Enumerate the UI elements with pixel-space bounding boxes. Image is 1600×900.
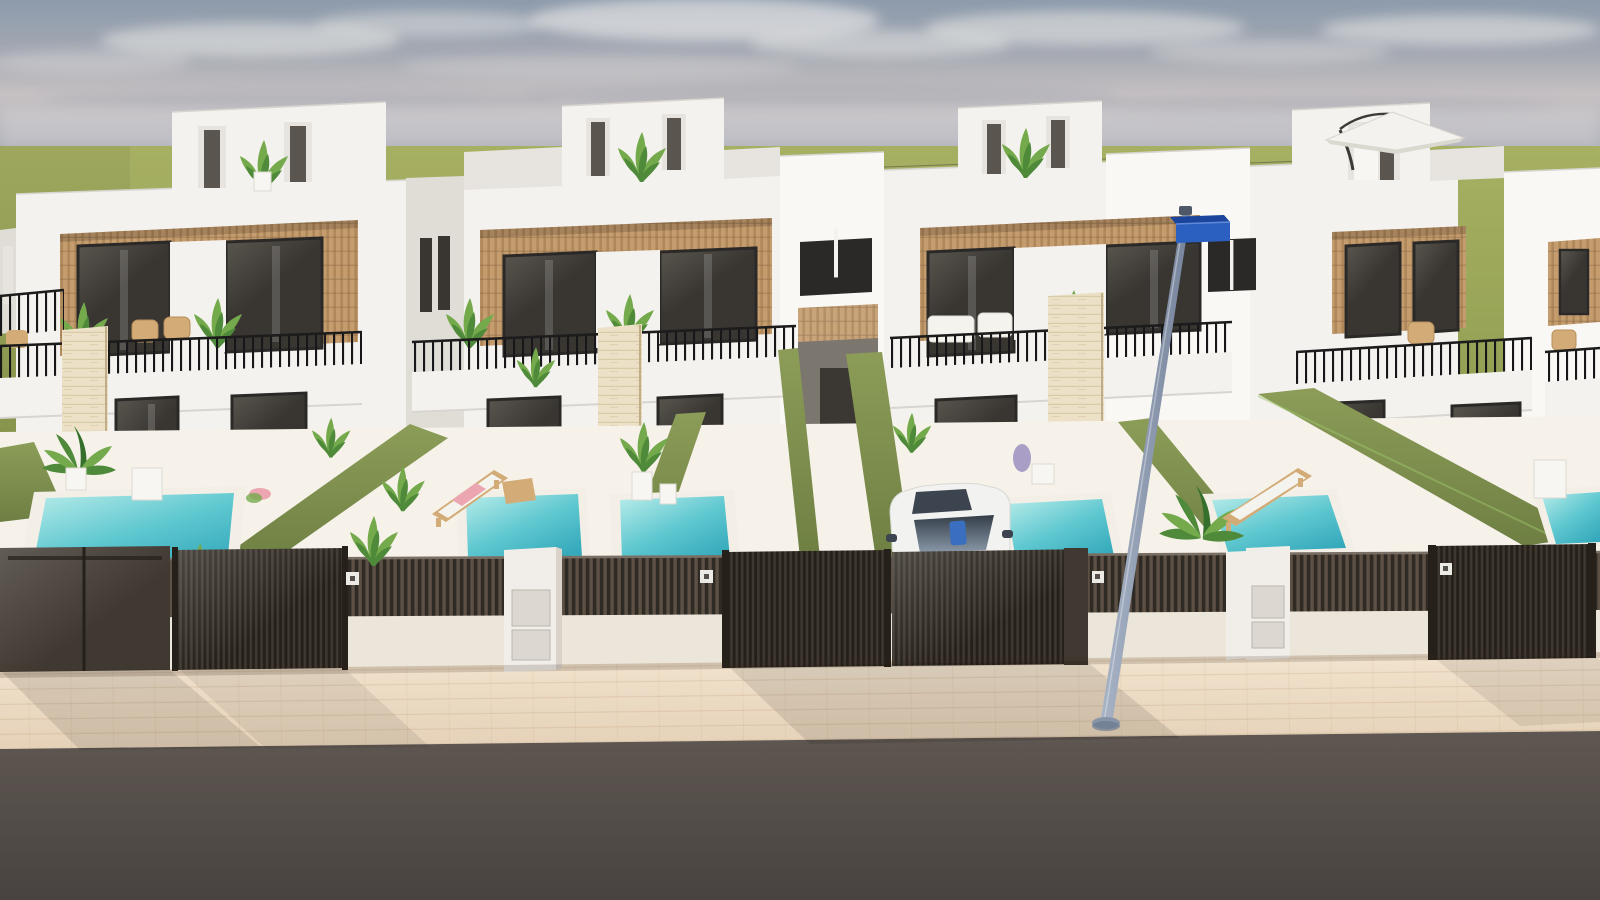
meter-door-1: [512, 590, 550, 626]
roof-wall-2: [464, 147, 562, 190]
balcony-5-wicker-chair: [1552, 330, 1576, 350]
alley-wood-band: [798, 304, 878, 344]
yard-2-planter-2: [660, 484, 676, 504]
balcony-1-wicker-chair-2: [164, 317, 190, 339]
balcony-4-glass-right: [1414, 241, 1458, 333]
utility-pillar-1: [504, 547, 562, 672]
penthouse-1: [172, 102, 386, 194]
parapet-5: [1545, 378, 1600, 422]
yard-3-palm-pot: [1032, 464, 1054, 484]
penthouse-1-door: [204, 130, 220, 188]
architectural-rendering: 3D architectural rendering of a row of m…: [0, 0, 1600, 900]
gate-2-slatted: [172, 546, 359, 671]
car-mirror-right: [1002, 530, 1013, 538]
penthouse-2-door-2: [667, 118, 681, 170]
meter-door-4: [1252, 622, 1284, 648]
street-sign: [1170, 215, 1230, 243]
yard-1-plant-pot: [132, 468, 162, 500]
penthouse-1-door-2: [290, 126, 306, 182]
gate-3-pedestrian: [700, 549, 891, 668]
tower-3-4-window-mullion: [1230, 240, 1233, 290]
car-mirror-left: [886, 534, 897, 542]
meter-door-3: [1252, 586, 1284, 618]
yard-3-lavender: [1013, 444, 1031, 472]
penthouse-3: [958, 101, 1102, 183]
penthouse-1-pot: [254, 172, 271, 191]
yard-1-palm-pot: [66, 468, 86, 490]
roof-wall-4: [1430, 146, 1504, 181]
balcony-1-wicker-chair: [132, 320, 158, 342]
yard-2-planter: [632, 472, 652, 500]
balcony-5-glass: [1560, 250, 1588, 314]
house-2-side-slit-1: [420, 238, 432, 312]
car-roof-glass: [912, 489, 972, 514]
balcony-4-glass-left: [1346, 243, 1400, 337]
yard-5-palm-pot: [1534, 460, 1566, 498]
utility-pillar-2: [1226, 546, 1290, 660]
gate-5: [1428, 543, 1596, 660]
car-interior-item: [949, 520, 967, 545]
lamp-pole-cap: [1179, 206, 1192, 215]
meter-door-2: [512, 630, 550, 660]
render-viewport: 3D architectural rendering of a row of m…: [0, 0, 1600, 900]
penthouse-3-door: [987, 124, 1001, 174]
gate-1-solid: [0, 546, 170, 672]
balcony-4-wicker-chair: [1408, 322, 1434, 344]
penthouse-3-door-2: [1051, 120, 1065, 168]
penthouse-2-door: [591, 122, 605, 176]
tower-2-3-window-mullion: [834, 228, 838, 277]
road: [0, 731, 1600, 900]
gate-4-driveway: [892, 548, 1104, 666]
side-table: [502, 478, 536, 504]
house-2-side-slit-2: [438, 236, 450, 310]
roof-wall-2b: [724, 147, 780, 179]
street-sign-front: [1176, 222, 1230, 243]
